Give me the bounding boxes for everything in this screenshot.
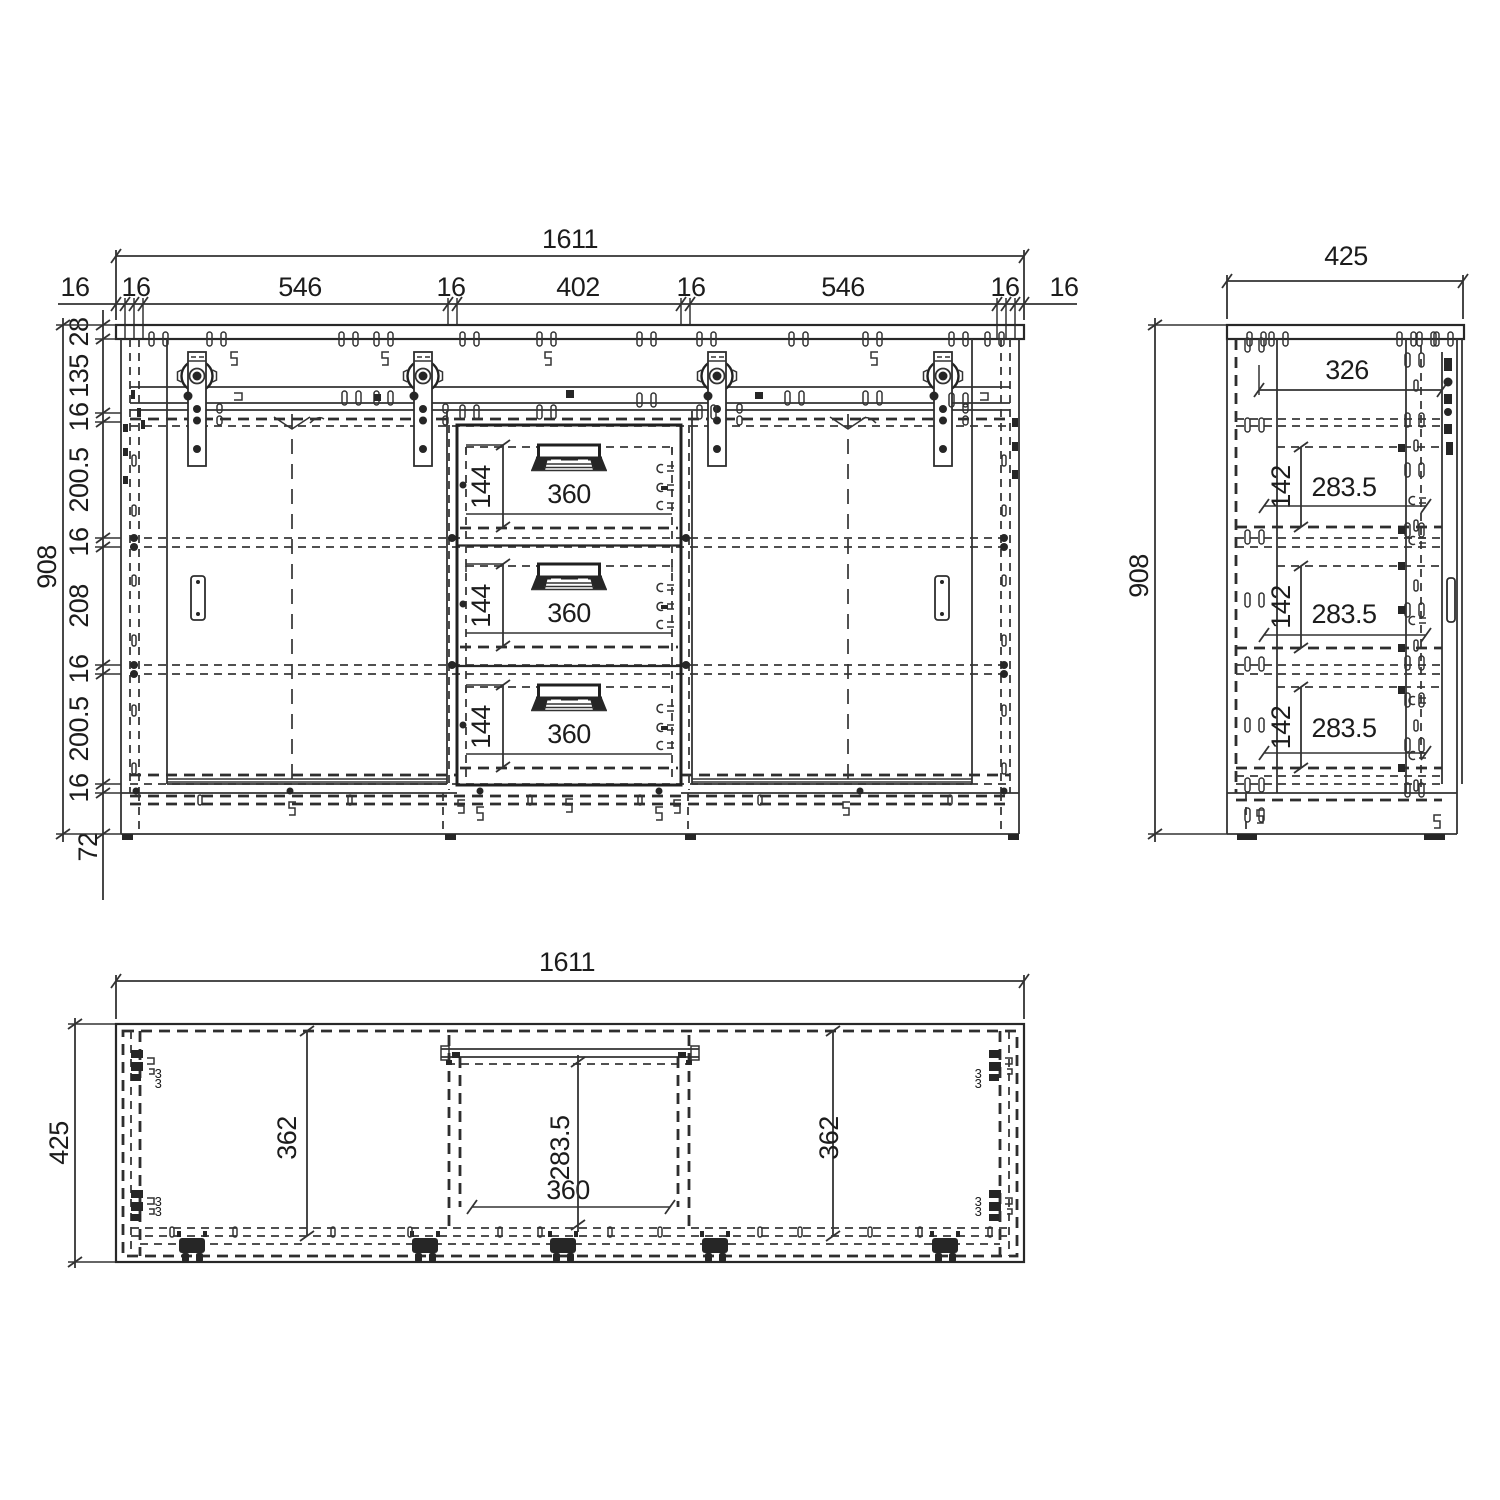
svg-text:144: 144 [466,584,496,628]
svg-text:908: 908 [1124,554,1154,598]
svg-text:908: 908 [32,545,62,589]
svg-text:360: 360 [547,598,591,628]
svg-text:16: 16 [64,654,94,683]
svg-text:362: 362 [272,1116,302,1160]
svg-text:16: 16 [1049,272,1078,302]
svg-text:142: 142 [1266,706,1296,750]
svg-text:326: 326 [1325,355,1369,385]
svg-text:144: 144 [466,705,496,749]
svg-text:144: 144 [466,465,496,509]
svg-text:283.5: 283.5 [1311,713,1376,743]
svg-text:283.5: 283.5 [1311,472,1376,502]
svg-text:1611: 1611 [539,947,595,977]
svg-text:16: 16 [64,402,94,431]
svg-text:16: 16 [64,773,94,802]
svg-text:546: 546 [821,272,865,302]
svg-text:72: 72 [73,832,103,861]
svg-text:16: 16 [64,527,94,556]
svg-text:283.5: 283.5 [1311,599,1376,629]
svg-text:16: 16 [676,272,705,302]
svg-text:16: 16 [60,272,89,302]
svg-text:142: 142 [1266,585,1296,629]
svg-text:3: 3 [975,1204,982,1219]
svg-text:425: 425 [44,1121,74,1165]
svg-text:135: 135 [64,354,94,398]
svg-text:360: 360 [547,719,591,749]
svg-text:3: 3 [155,1076,162,1091]
svg-text:142: 142 [1266,465,1296,509]
svg-text:200.5: 200.5 [64,447,94,512]
svg-text:362: 362 [814,1116,844,1160]
svg-text:425: 425 [1324,241,1368,271]
svg-text:16: 16 [436,272,465,302]
svg-text:1611: 1611 [542,224,598,254]
svg-text:3: 3 [155,1204,162,1219]
svg-text:402: 402 [556,272,600,302]
svg-text:546: 546 [278,272,322,302]
svg-text:16: 16 [121,272,150,302]
svg-text:208: 208 [64,584,94,628]
svg-text:3: 3 [975,1076,982,1091]
svg-text:360: 360 [547,479,591,509]
svg-text:283.5: 283.5 [545,1115,575,1180]
svg-text:200.5: 200.5 [64,696,94,761]
svg-text:16: 16 [990,272,1019,302]
